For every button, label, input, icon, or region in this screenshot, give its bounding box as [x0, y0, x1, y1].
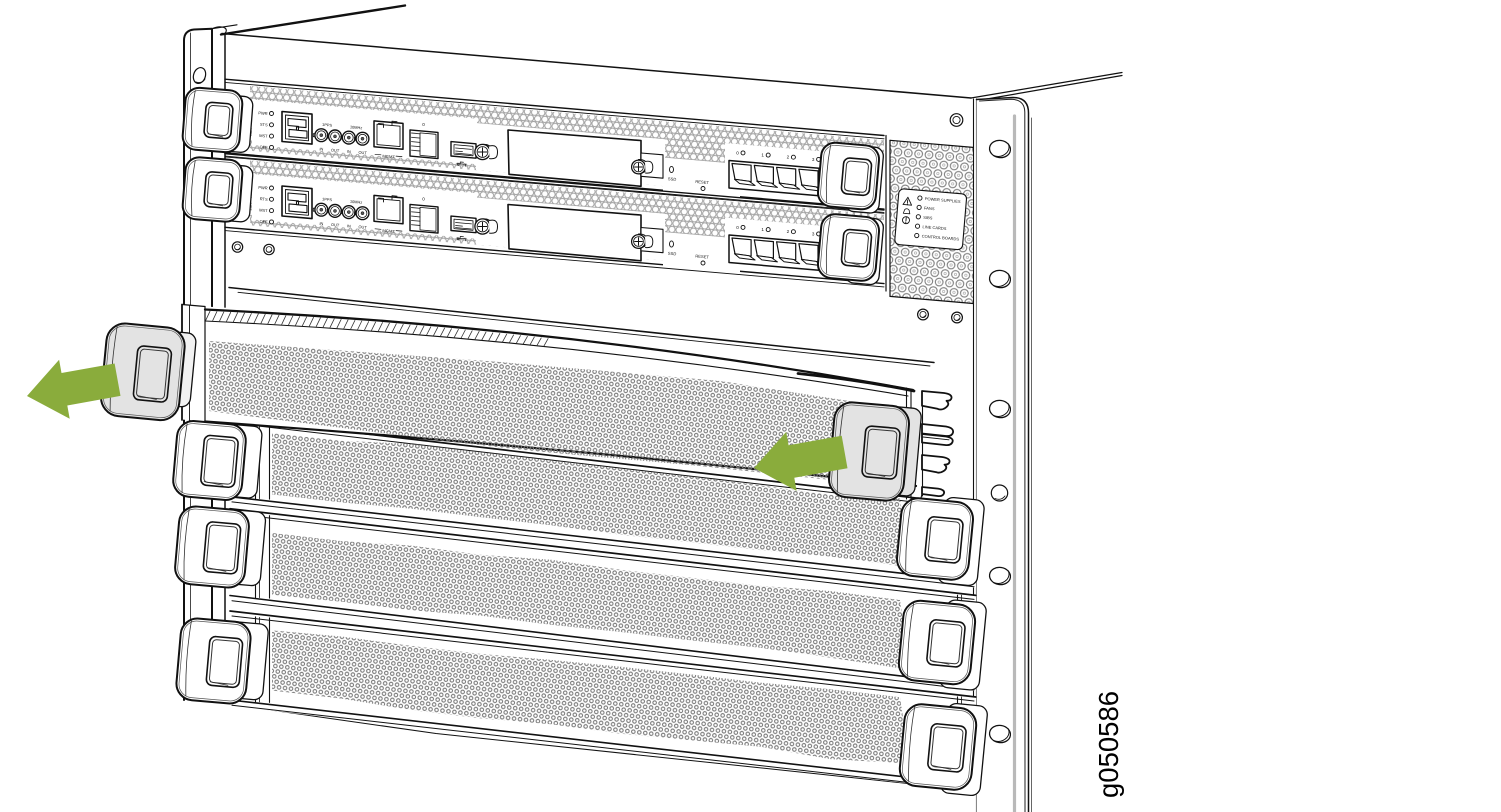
svg-text:SSD: SSD — [668, 251, 677, 257]
svg-text:0: 0 — [422, 122, 425, 127]
svg-text:1PPS: 1PPS — [322, 122, 333, 128]
svg-text:0: 0 — [422, 197, 425, 202]
svg-text:SSD: SSD — [668, 176, 677, 182]
svg-text:10MHz: 10MHz — [350, 199, 363, 205]
svg-text:RTS: RTS — [260, 196, 269, 202]
svg-text:2: 2 — [787, 229, 790, 234]
svg-text:1PPS: 1PPS — [322, 196, 333, 202]
svg-text:IN: IN — [319, 146, 323, 151]
svg-text:g050586: g050586 — [1093, 691, 1124, 798]
svg-text:OUT: OUT — [358, 150, 367, 156]
svg-text:IN: IN — [347, 149, 351, 154]
svg-text:1: 1 — [761, 227, 764, 232]
svg-text:OUT: OUT — [331, 222, 340, 228]
svg-text:IN: IN — [347, 223, 351, 228]
svg-text:IN: IN — [319, 221, 323, 226]
svg-text:3: 3 — [812, 231, 815, 236]
svg-text:3: 3 — [812, 157, 815, 162]
svg-text:OFF: OFF — [259, 219, 268, 225]
svg-text:FANS: FANS — [924, 205, 935, 211]
svg-text:MST: MST — [259, 133, 268, 139]
svg-text:STS: STS — [260, 122, 269, 128]
svg-text:PWR: PWR — [258, 110, 268, 116]
svg-text:OUT: OUT — [358, 224, 367, 230]
svg-text:0: 0 — [736, 150, 739, 155]
svg-text:2: 2 — [787, 155, 790, 160]
svg-text:PWR: PWR — [258, 185, 268, 191]
svg-text:OUT: OUT — [331, 147, 340, 153]
svg-text:SIBS: SIBS — [923, 215, 933, 221]
svg-text:10MHz: 10MHz — [350, 124, 363, 130]
svg-text:0: 0 — [736, 225, 739, 230]
svg-text:MST: MST — [259, 207, 268, 213]
svg-text:1: 1 — [761, 153, 764, 158]
svg-text:OFF: OFF — [259, 144, 268, 150]
